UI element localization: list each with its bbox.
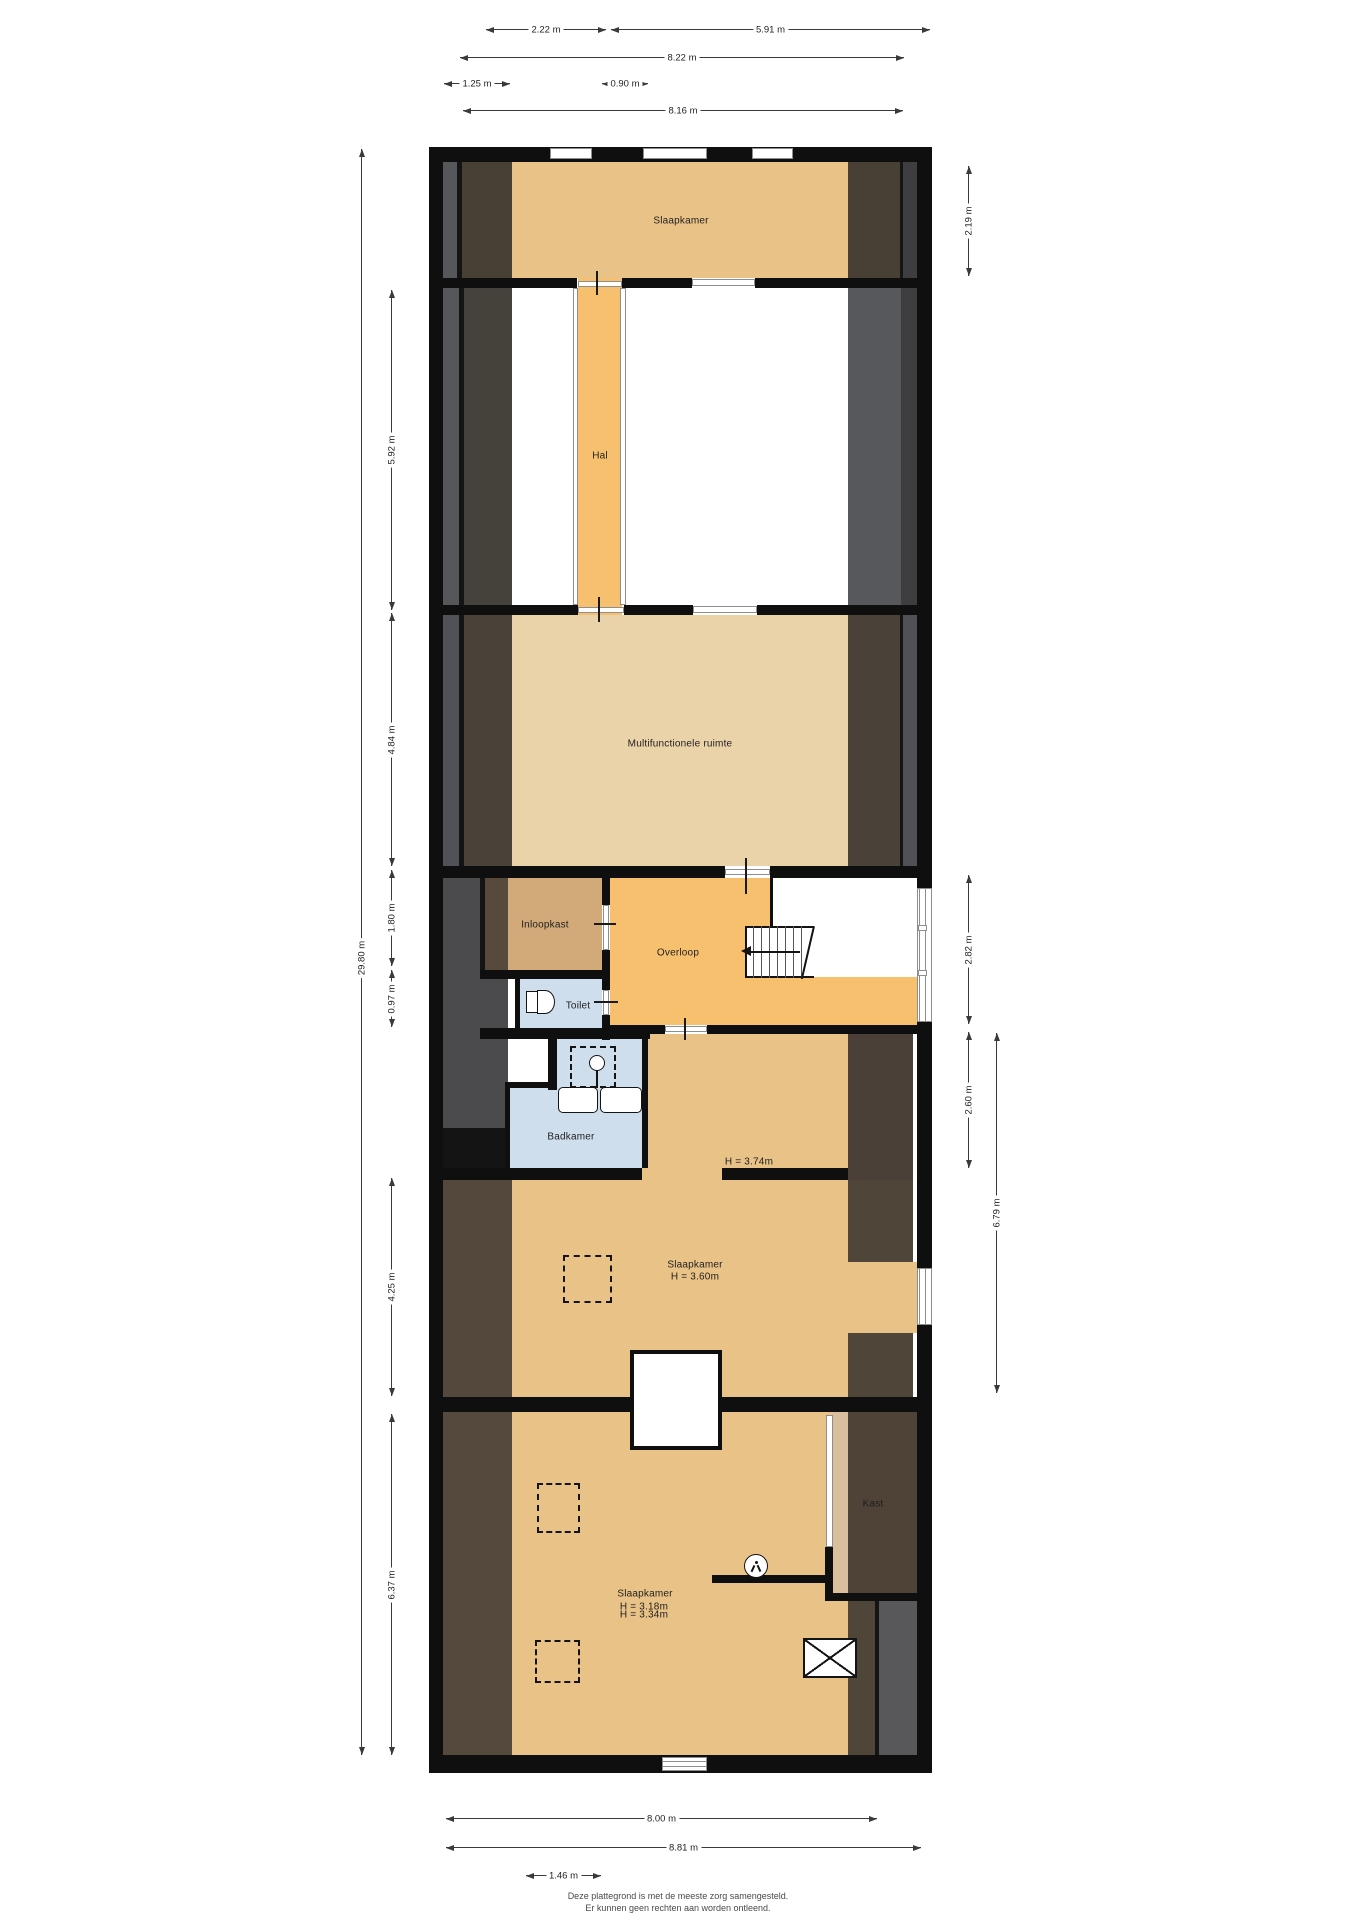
dim-2-22-arrow-right bbox=[598, 27, 606, 33]
door-tick-toilet bbox=[594, 1001, 618, 1003]
door-tick-hal-top bbox=[596, 271, 598, 295]
band-dark-hal-left bbox=[464, 288, 512, 605]
dim-8-16-arrow-right bbox=[895, 108, 903, 114]
dim-5-92-label: 5.92 m bbox=[386, 432, 397, 467]
wall-h374-bottom-a bbox=[429, 1168, 642, 1180]
wall-inloopkast-right-a bbox=[602, 878, 610, 905]
wall-multi-top-c bbox=[757, 605, 917, 615]
floor-kast-sliver bbox=[833, 1412, 848, 1593]
dim-8-16-label: 8.16 m bbox=[665, 105, 700, 116]
mullion-stairs-1 bbox=[918, 925, 927, 931]
wall-multi-top-a bbox=[443, 605, 578, 615]
band-grey-multi-left bbox=[443, 615, 459, 866]
sill-hal-bottom bbox=[578, 607, 624, 613]
window-stairs-line bbox=[919, 888, 926, 1022]
footer-disclaimer-line1: Deze plattegrond is met de meeste zorg s… bbox=[378, 1891, 978, 1901]
window-top-3 bbox=[752, 148, 793, 159]
dim-1-25-label: 1.25 m bbox=[459, 78, 494, 89]
band-grey-top-right bbox=[903, 162, 917, 278]
shower-head-stem bbox=[596, 1070, 598, 1088]
wall-h374-bottom-b bbox=[722, 1168, 848, 1180]
dim-5-91-arrow-right bbox=[922, 27, 930, 33]
band-brown-inloopkast bbox=[485, 878, 508, 973]
dim-8-00-label: 8.00 m bbox=[644, 1813, 679, 1824]
dim-1-46-arrow-right bbox=[593, 1873, 601, 1879]
dim-0-97-label: 0.97 m bbox=[386, 981, 397, 1016]
dim-2-60-label: 2.60 m bbox=[963, 1082, 974, 1117]
dim-0-90-label: 0.90 m bbox=[607, 78, 642, 89]
band-brown-mid-right-a bbox=[848, 1180, 913, 1262]
room-label-slaapkamer-mid: Slaapkamer bbox=[667, 1260, 722, 1271]
dim-1-80-arrow-down bbox=[389, 958, 395, 966]
dim-6-79-arrow-up bbox=[994, 1033, 1000, 1041]
skylight-bottom-bedroom-1 bbox=[537, 1483, 580, 1533]
dim-29-80-arrow-up bbox=[359, 149, 365, 157]
window-top-2 bbox=[643, 148, 707, 159]
wall-badkamer-left bbox=[505, 1082, 510, 1168]
dim-2-19-label: 2.19 m bbox=[963, 203, 974, 238]
dim-8-81-arrow-right bbox=[913, 1845, 921, 1851]
footer-disclaimer-line2: Er kunnen geen rechten aan worden ontlee… bbox=[378, 1903, 978, 1913]
dim-2-19-arrow-up bbox=[966, 166, 972, 174]
dim-8-22-label: 8.22 m bbox=[664, 52, 699, 63]
dim-5-92-arrow-down bbox=[389, 602, 395, 610]
height-label-334: H = 3.34m bbox=[620, 1610, 668, 1621]
floor-hal bbox=[578, 278, 622, 615]
dim-8-16-arrow-left bbox=[463, 108, 471, 114]
dim-1-80-label: 1.80 m bbox=[386, 900, 397, 935]
dim-8-22-arrow-left bbox=[460, 55, 468, 61]
stairs-direction-line bbox=[750, 951, 800, 953]
wall-bed-bottom-a bbox=[443, 278, 577, 288]
dim-1-25-arrow-left bbox=[444, 81, 452, 87]
dim-2-22-arrow-left bbox=[486, 27, 494, 33]
dim-2-82-arrow-up bbox=[966, 875, 972, 883]
chimney-void bbox=[630, 1350, 722, 1450]
person-icon-head bbox=[755, 1561, 758, 1564]
window-bottom-line bbox=[662, 1761, 707, 1767]
window-mid-line bbox=[919, 1268, 926, 1325]
band-brown-bottom-left bbox=[443, 1412, 512, 1755]
dim-2-82-label: 2.82 m bbox=[963, 932, 974, 967]
room-label-inloopkast: Inloopkast bbox=[521, 920, 569, 931]
band-dark-hal-right bbox=[901, 288, 917, 605]
door-tick-hal-bottom bbox=[598, 597, 600, 622]
dim-6-37-arrow-up bbox=[389, 1414, 395, 1422]
room-label-overloop: Overloop bbox=[657, 948, 699, 959]
dim-8-00-arrow-right bbox=[869, 1816, 877, 1822]
floor-h374 bbox=[648, 1034, 848, 1168]
glass-hal-right bbox=[620, 288, 626, 605]
room-label-toilet: Toilet bbox=[566, 1001, 591, 1012]
band-grey-bottom-right bbox=[879, 1601, 917, 1755]
window-top-1 bbox=[550, 148, 592, 159]
wall-bottom-partition bbox=[712, 1575, 833, 1583]
band-grey-hal-right bbox=[848, 288, 901, 605]
dim-8-22-arrow-right bbox=[896, 55, 904, 61]
wall-badkamer-horiz bbox=[505, 1082, 557, 1088]
wall-multi-bottom-b bbox=[770, 866, 917, 878]
floor-mid-window-nook bbox=[848, 1262, 917, 1333]
dim-2-60-arrow-down bbox=[966, 1160, 972, 1168]
room-label-slaapkamer-top: Slaapkamer bbox=[653, 216, 708, 227]
wall-left bbox=[429, 147, 443, 1773]
window-bed-bottom bbox=[692, 279, 755, 286]
stairs-direction-arrowhead bbox=[741, 946, 751, 956]
dim-29-80-label: 29.80 m bbox=[356, 938, 367, 978]
dim-0-97-arrow-up bbox=[389, 970, 395, 978]
dim-2-22-label: 2.22 m bbox=[528, 24, 563, 35]
wall-toilet-left bbox=[515, 979, 520, 1028]
sink-left bbox=[558, 1087, 598, 1113]
dim-6-79-label: 6.79 m bbox=[991, 1195, 1002, 1230]
skylight-bottom-bedroom-2 bbox=[535, 1640, 580, 1683]
dim-5-91-arrow-left bbox=[611, 27, 619, 33]
room-label-kast: Kast bbox=[863, 1499, 884, 1510]
dim-5-92-arrow-up bbox=[389, 290, 395, 298]
band-brown-top-right bbox=[848, 162, 900, 278]
dim-6-79-arrow-down bbox=[994, 1385, 1000, 1393]
glass-hal-left bbox=[573, 288, 578, 605]
room-label-multifunctionele-ruimte: Multifunctionele ruimte bbox=[628, 739, 733, 750]
height-label-374: H = 3.74m bbox=[725, 1157, 773, 1168]
dim-6-37-label: 6.37 m bbox=[386, 1567, 397, 1602]
opening-overloop-bed bbox=[665, 1026, 707, 1032]
dim-1-46-label: 1.46 m bbox=[546, 1870, 581, 1881]
floor-h374-opening bbox=[642, 1168, 722, 1180]
crossed-box-fixture bbox=[803, 1638, 857, 1678]
dim-8-81-label: 8.81 m bbox=[666, 1842, 701, 1853]
mullion-stairs-2 bbox=[918, 970, 927, 976]
door-tick-multi-overloop bbox=[745, 858, 747, 894]
door-kast bbox=[826, 1415, 833, 1547]
wall-mid-bottom-b bbox=[722, 1397, 917, 1412]
skylight-mid-bedroom bbox=[563, 1255, 612, 1303]
door-tick-inloopkast bbox=[594, 923, 616, 925]
dim-2-19-arrow-down bbox=[966, 268, 972, 276]
window-multi-top bbox=[693, 606, 757, 613]
band-brown-top-left bbox=[462, 162, 512, 278]
dim-2-60-arrow-up bbox=[966, 1032, 972, 1040]
dim-0-97-arrow-down bbox=[389, 1019, 395, 1027]
wall-badkamer-right bbox=[642, 1028, 648, 1168]
dim-4-84-label: 4.84 m bbox=[386, 722, 397, 757]
band-brown-mid-right-b bbox=[848, 1333, 913, 1397]
dim-1-25-arrow-right bbox=[502, 81, 510, 87]
dim-8-00-arrow-left bbox=[446, 1816, 454, 1822]
band-grey-multi-right bbox=[903, 615, 917, 866]
room-label-badkamer: Badkamer bbox=[547, 1132, 594, 1143]
opening-multi-overloop bbox=[725, 869, 770, 875]
band-brown-bottom-right bbox=[848, 1601, 875, 1755]
wall-stairwell-edge bbox=[770, 878, 773, 928]
dim-5-91-label: 5.91 m bbox=[753, 24, 788, 35]
wall-overloop-bottom-b bbox=[707, 1025, 917, 1034]
wall-overloop-bottom-a bbox=[607, 1025, 665, 1034]
floor-plan: Deze plattegrond is met de meeste zorg s… bbox=[0, 0, 1358, 1920]
dim-4-84-arrow-up bbox=[389, 613, 395, 621]
band-grey-hal-left bbox=[443, 288, 459, 605]
dim-4-84-arrow-down bbox=[389, 858, 395, 866]
sink-right bbox=[600, 1087, 642, 1113]
height-label-360: H = 3.60m bbox=[671, 1272, 719, 1283]
wall-badkamer-vert bbox=[548, 1028, 557, 1090]
band-grey-top-left bbox=[443, 162, 457, 278]
dim-1-80-arrow-up bbox=[389, 870, 395, 878]
band-brown-h374-right bbox=[848, 1033, 913, 1180]
dim-2-82-arrow-down bbox=[966, 1016, 972, 1024]
wall-bed-bottom-b bbox=[622, 278, 692, 288]
shower-head-icon bbox=[589, 1055, 605, 1071]
floor-slaapkamer-bottom bbox=[512, 1412, 848, 1755]
dim-4-25-arrow-down bbox=[389, 1388, 395, 1396]
wall-mid-bottom-a bbox=[443, 1397, 630, 1412]
dim-4-25-label: 4.25 m bbox=[386, 1269, 397, 1304]
band-brown-multi-right bbox=[848, 615, 900, 866]
wall-bed-bottom-c bbox=[755, 278, 917, 288]
dim-8-81-arrow-left bbox=[446, 1845, 454, 1851]
dim-4-25-arrow-up bbox=[389, 1178, 395, 1186]
room-label-hal: Hal bbox=[592, 451, 608, 462]
dim-29-80-arrow-down bbox=[359, 1747, 365, 1755]
band-brown-mid-left bbox=[443, 1180, 512, 1397]
sill-hal-top bbox=[578, 281, 622, 287]
door-tick-overloop-bed bbox=[684, 1018, 686, 1040]
wall-multi-bottom-a bbox=[443, 866, 725, 878]
room-label-slaapkamer-bottom: Slaapkamer bbox=[617, 1589, 672, 1600]
dim-6-37-arrow-down bbox=[389, 1747, 395, 1755]
wall-multi-top-b bbox=[624, 605, 693, 615]
door-inloopkast bbox=[603, 905, 609, 950]
wall-kast-bottom bbox=[825, 1593, 917, 1601]
wall-inloopkast-bottom bbox=[480, 970, 610, 979]
dim-1-46-arrow-left bbox=[526, 1873, 534, 1879]
band-brown-multi-left bbox=[464, 615, 512, 866]
